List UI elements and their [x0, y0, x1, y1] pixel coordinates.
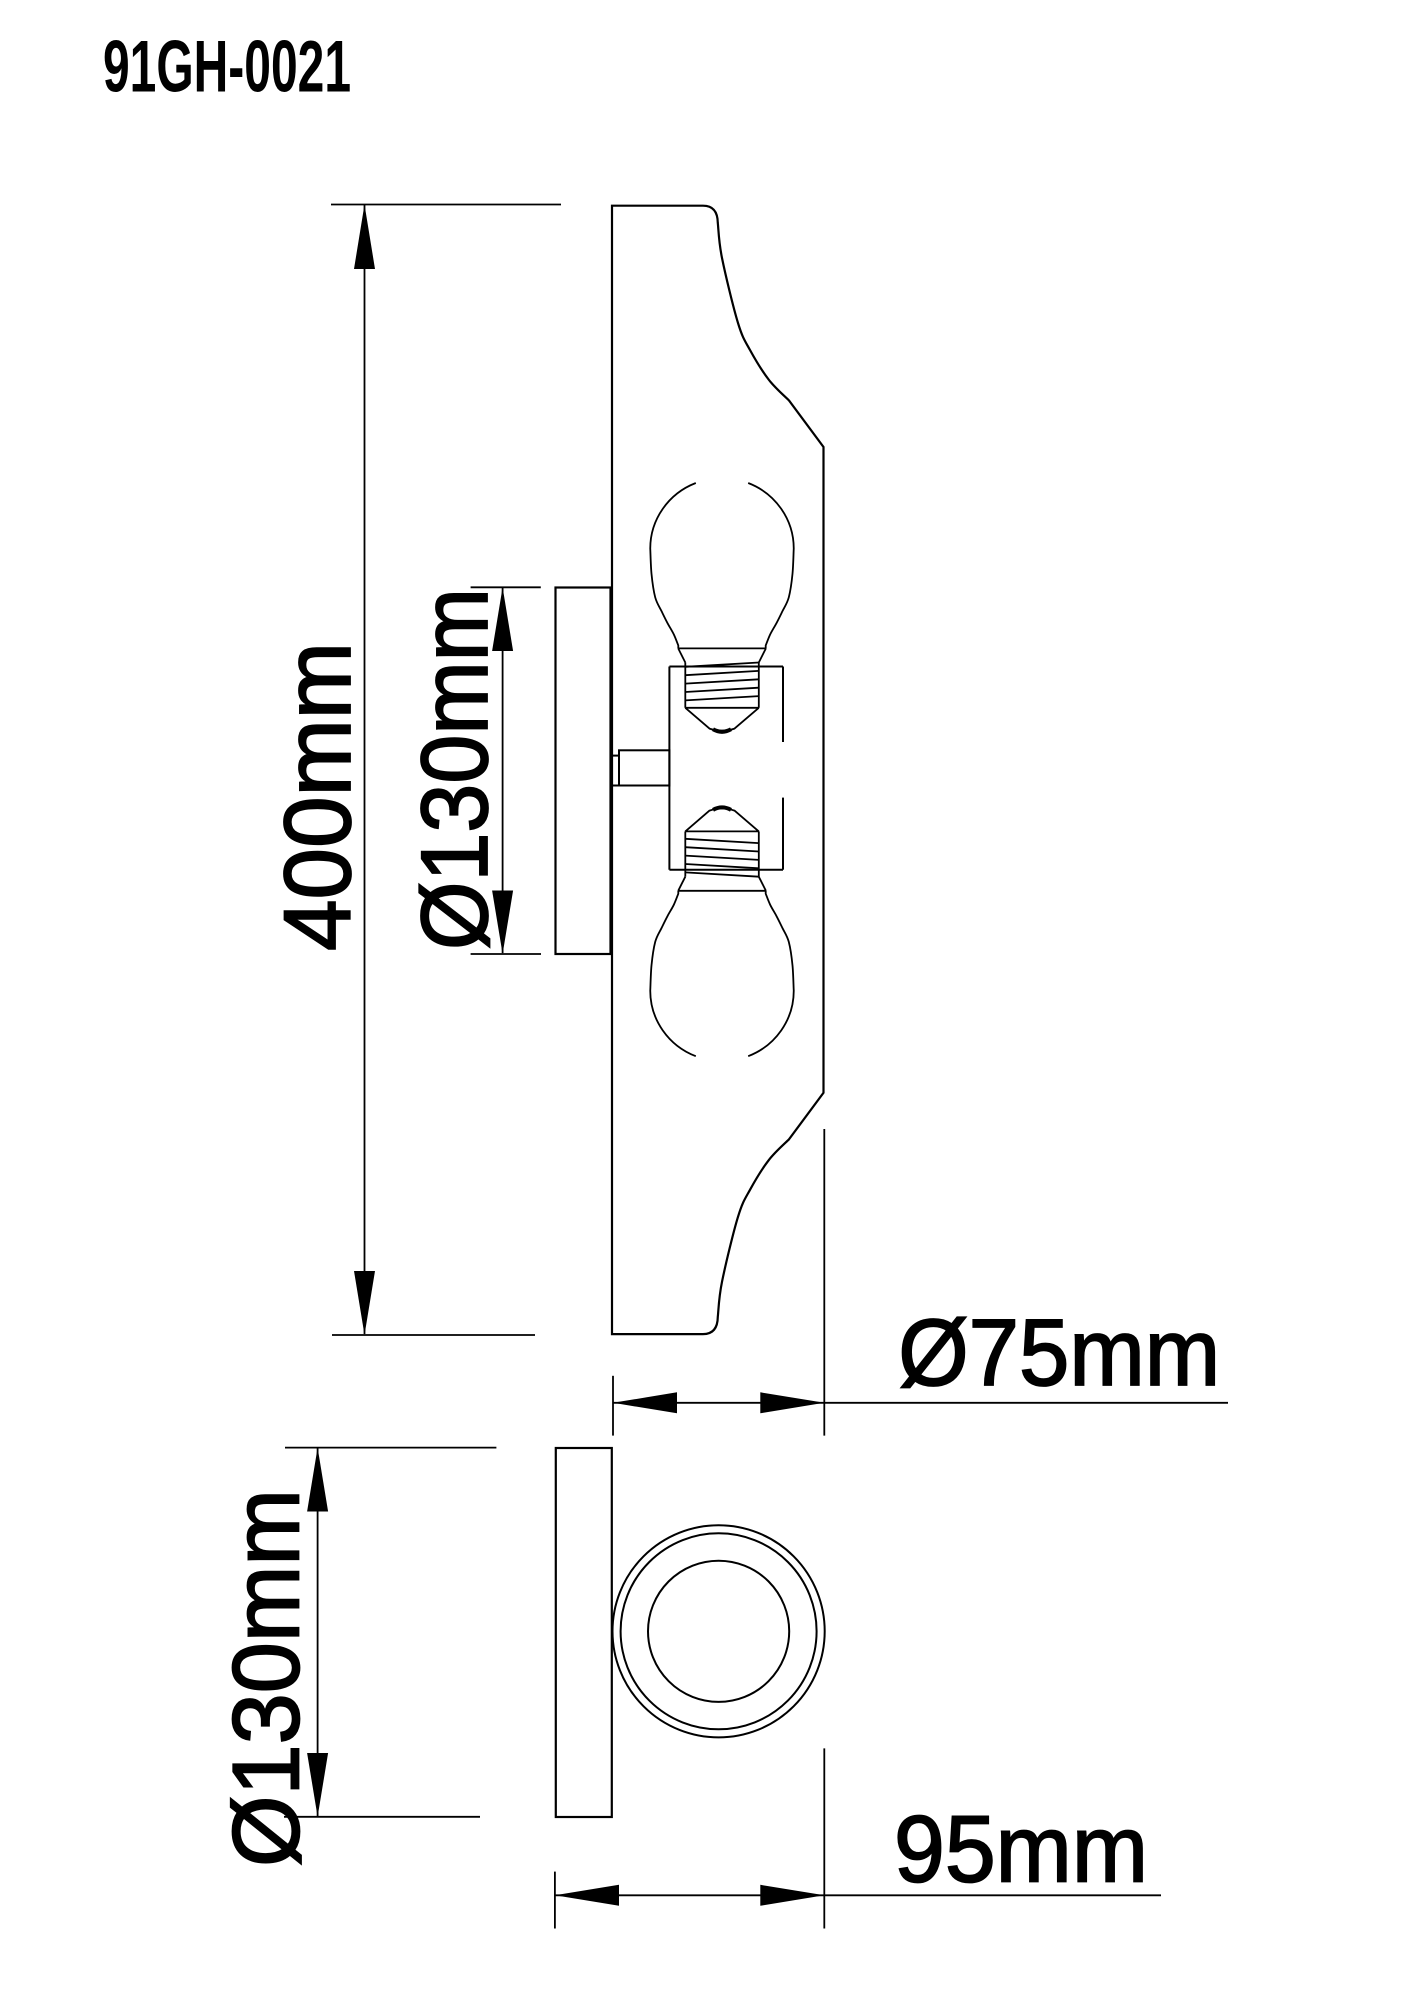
svg-text:91GH-0021: 91GH-0021	[103, 26, 351, 107]
svg-text:Ø130mm: Ø130mm	[214, 1489, 320, 1867]
svg-text:95mm: 95mm	[894, 1797, 1148, 1903]
svg-text:Ø75mm: Ø75mm	[898, 1300, 1220, 1406]
svg-text:400mm: 400mm	[265, 642, 371, 951]
svg-text:Ø130mm: Ø130mm	[402, 588, 508, 950]
